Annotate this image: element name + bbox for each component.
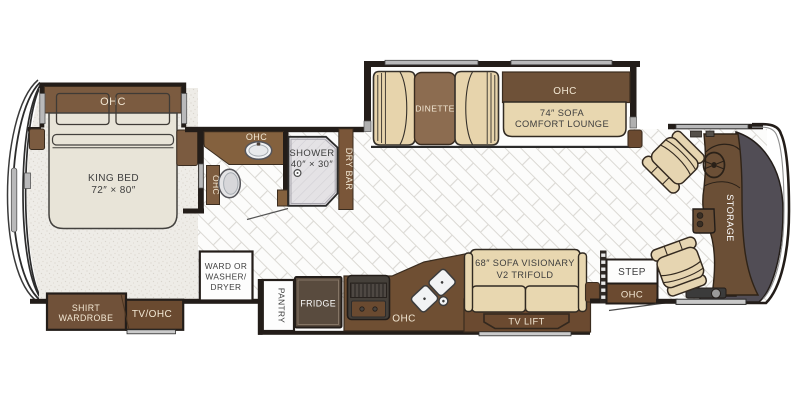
svg-text:WASHER/: WASHER/ xyxy=(205,272,247,282)
svg-text:OHC: OHC xyxy=(100,96,126,108)
svg-text:SHIRT: SHIRT xyxy=(72,303,100,313)
svg-text:40″ × 30″: 40″ × 30″ xyxy=(291,159,334,170)
svg-text:PANTRY: PANTRY xyxy=(277,288,287,323)
svg-text:OHC: OHC xyxy=(392,314,415,325)
svg-text:OHC: OHC xyxy=(621,290,643,301)
svg-text:72″ × 80″: 72″ × 80″ xyxy=(91,185,135,196)
svg-text:TV/OHC: TV/OHC xyxy=(132,309,172,320)
svg-text:OHC: OHC xyxy=(246,132,267,142)
svg-text:FRIDGE: FRIDGE xyxy=(300,299,336,309)
svg-text:STORAGE: STORAGE xyxy=(725,194,735,242)
svg-text:OHC: OHC xyxy=(553,86,576,97)
svg-text:KING BED: KING BED xyxy=(88,173,139,184)
svg-text:DINETTE: DINETTE xyxy=(415,104,455,114)
svg-text:STEP: STEP xyxy=(618,267,646,278)
svg-text:SHOWER: SHOWER xyxy=(289,148,334,159)
svg-text:COMFORT LOUNGE: COMFORT LOUNGE xyxy=(515,119,609,129)
svg-text:68″ SOFA VISIONARY: 68″ SOFA VISIONARY xyxy=(475,258,575,268)
svg-text:74″ SOFA: 74″ SOFA xyxy=(540,108,585,118)
svg-text:TV LIFT: TV LIFT xyxy=(508,317,544,327)
svg-text:DRY BAR: DRY BAR xyxy=(344,148,354,191)
svg-text:WARDROBE: WARDROBE xyxy=(59,313,114,323)
svg-text:DRYER: DRYER xyxy=(211,282,242,292)
svg-text:V2 TRIFOLD: V2 TRIFOLD xyxy=(497,270,554,280)
svg-text:WARD OR: WARD OR xyxy=(205,261,248,271)
